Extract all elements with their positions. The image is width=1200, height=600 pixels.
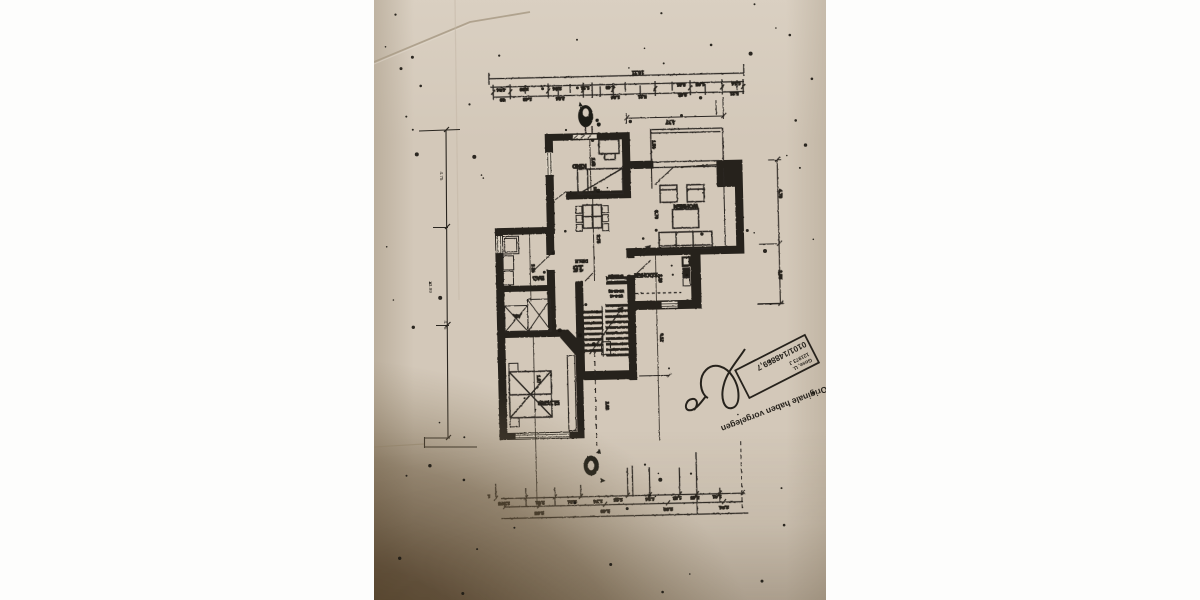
svg-text:2.62: 2.62	[605, 402, 610, 411]
svg-text:BAD: BAD	[532, 274, 544, 280]
svg-text:1.05: 1.05	[695, 82, 704, 87]
svg-text:3.76: 3.76	[654, 210, 659, 219]
svg-text:WOHNUNG: WOHNUNG	[608, 274, 623, 278]
svg-text:15: 15	[572, 262, 584, 273]
svg-text:1.57: 1.57	[536, 375, 541, 384]
svg-text:1.64: 1.64	[610, 95, 619, 100]
svg-text:1.14: 1.14	[731, 81, 740, 86]
svg-text:AB.: AB.	[513, 314, 521, 319]
svg-text:4.37: 4.37	[665, 118, 675, 124]
svg-text:1.50: 1.50	[651, 140, 656, 149]
svg-text:2.65: 2.65	[591, 158, 596, 167]
svg-text:2.26: 2.26	[658, 274, 663, 283]
svg-text:4.76: 4.76	[778, 189, 783, 198]
svg-text:2.58: 2.58	[778, 270, 783, 279]
svg-text:1.11: 1.11	[580, 86, 589, 91]
svg-text:90: 90	[499, 97, 505, 102]
svg-text:2.64: 2.64	[555, 96, 564, 101]
svg-text:3.12: 3.12	[659, 333, 664, 342]
svg-text:3.75: 3.75	[596, 235, 601, 244]
svg-text:2.39: 2.39	[519, 87, 528, 92]
svg-text:KIND: KIND	[572, 162, 586, 168]
svg-text:2.26: 2.26	[531, 264, 536, 273]
svg-text:5.11: 5.11	[730, 91, 739, 96]
svg-text:16.11: 16.11	[631, 69, 643, 75]
svg-text:65-0-49: 65-0-49	[610, 294, 623, 298]
svg-text:WOHNEN: WOHNEN	[673, 202, 698, 209]
svg-text:05-13-02: 05-13-02	[609, 289, 624, 293]
svg-text:3.01: 3.01	[677, 92, 686, 97]
svg-text:5.11: 5.11	[638, 94, 647, 99]
svg-text:4.75: 4.75	[439, 172, 444, 181]
svg-text:KOCHEN: KOCHEN	[634, 271, 658, 278]
svg-text:3.01: 3.01	[676, 82, 685, 87]
svg-text:1.43: 1.43	[605, 85, 614, 90]
svg-text:1.43: 1.43	[522, 97, 531, 102]
svg-text:2.64: 2.64	[552, 86, 561, 91]
svg-text:4.64: 4.64	[496, 87, 505, 92]
svg-text:4.76: 4.76	[443, 321, 448, 330]
